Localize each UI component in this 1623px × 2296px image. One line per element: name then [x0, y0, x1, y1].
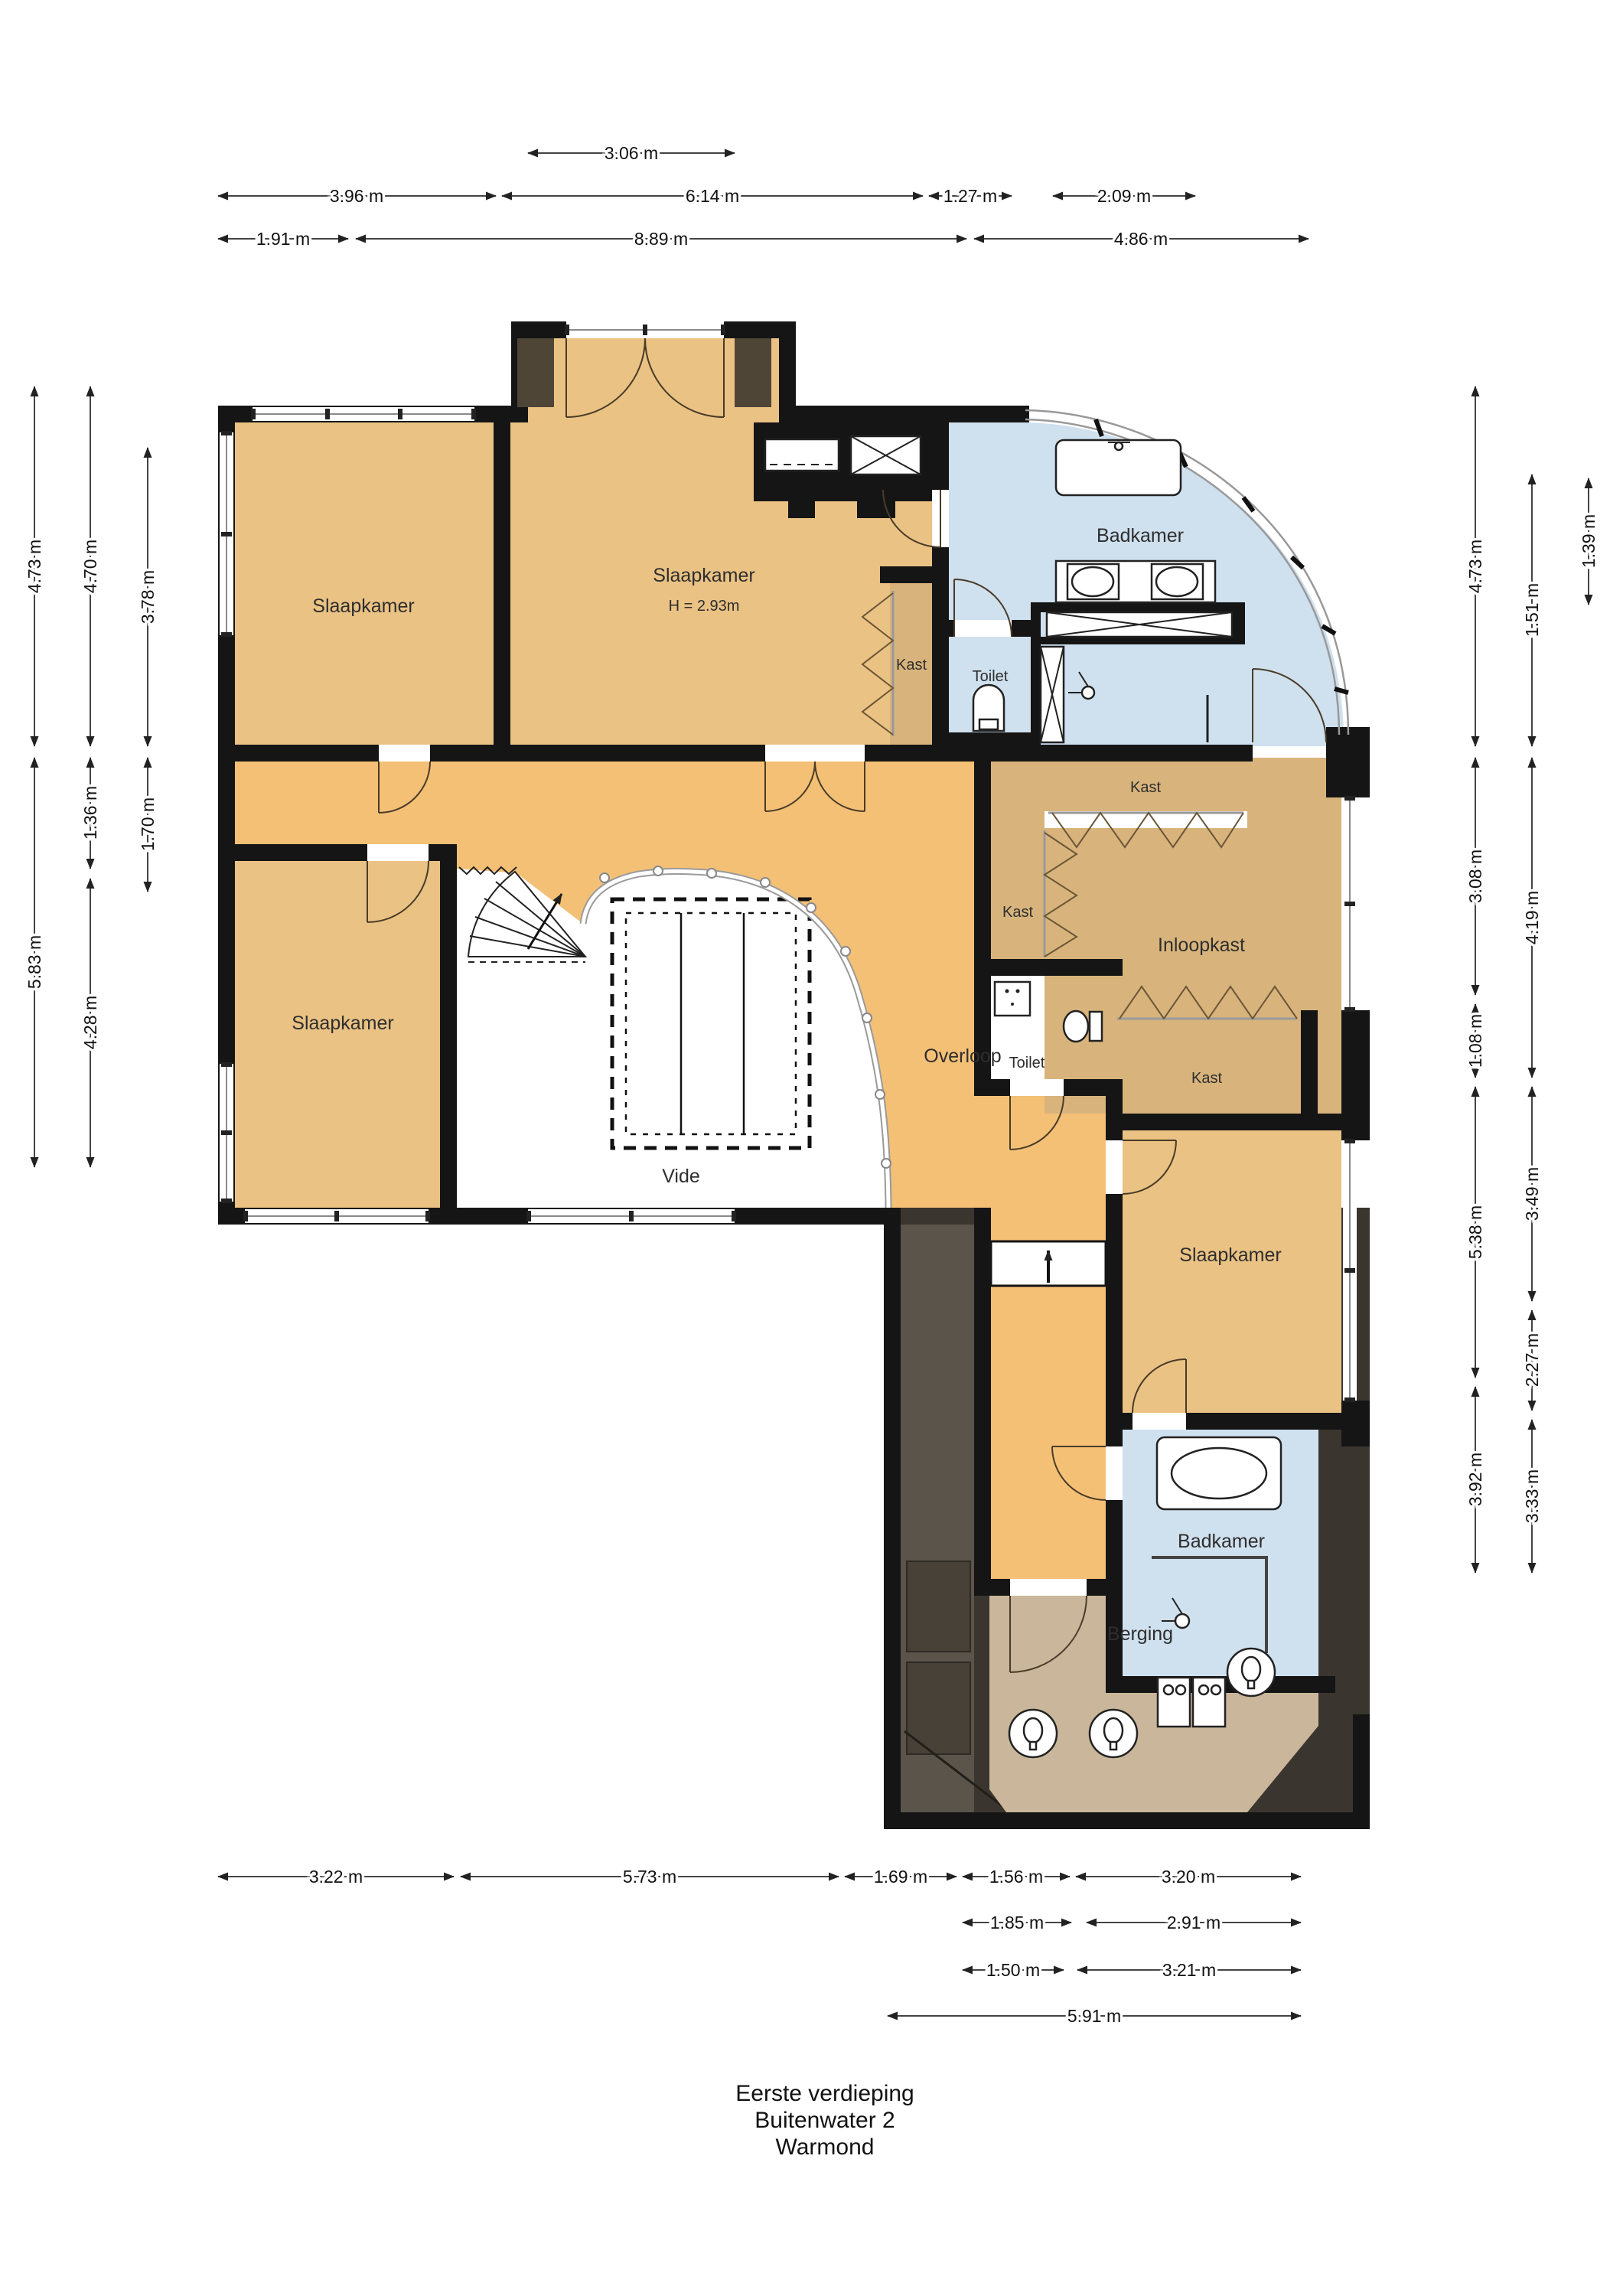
room-label-closet-strip: Kast — [1130, 779, 1161, 796]
svg-text:3.49 m: 3.49 m — [1522, 1167, 1542, 1221]
wall-pier-inset — [735, 338, 771, 407]
svg-text:2.27 m: 2.27 m — [1522, 1333, 1542, 1387]
dimension: 4.70 m — [80, 386, 100, 746]
svg-text:4.73 m: 4.73 m — [24, 540, 44, 593]
bathtub-icon — [1157, 1437, 1281, 1509]
wall-segment — [1353, 1714, 1370, 1812]
dimension: 1.50 m — [963, 1960, 1064, 1980]
svg-text:3.21 m: 3.21 m — [1162, 1960, 1216, 1980]
svg-text:4.86 m: 4.86 m — [1114, 229, 1168, 249]
title-line-2: Buitenwater 2 — [754, 2108, 895, 2133]
wall-segment — [1341, 1401, 1370, 1446]
dimension: 1.36 m — [80, 758, 100, 869]
wall-segment — [974, 1208, 991, 1596]
dimension: 5.91 m — [888, 2006, 1301, 2026]
duct-icon — [765, 439, 839, 471]
wall-segment — [796, 406, 1029, 422]
wall-segment — [440, 844, 457, 1208]
svg-text:5.38 m: 5.38 m — [1465, 1205, 1485, 1259]
window — [220, 431, 233, 637]
dimension: 4.73 m — [1465, 386, 1485, 746]
wall-segment — [1041, 602, 1245, 612]
dimension: 3.33 m — [1522, 1420, 1542, 1573]
svg-text:2.91 m: 2.91 m — [1167, 1913, 1221, 1932]
wall-segment — [511, 321, 566, 338]
dimension: 1.70 m — [138, 758, 158, 892]
svg-text:4.19 m: 4.19 m — [1522, 891, 1542, 944]
dimension: 1.39 m — [1579, 478, 1599, 605]
wall-segment — [218, 745, 1253, 762]
double-sink-icon — [1056, 561, 1215, 602]
shaft-x-icon — [851, 436, 921, 475]
dimension: 3.22 m — [218, 1867, 454, 1887]
title-line-1: Eerste verdieping — [735, 2081, 914, 2106]
roof-equipment-box — [907, 1561, 970, 1652]
wall-segment — [1301, 1010, 1318, 1114]
svg-text:3.22 m: 3.22 m — [309, 1867, 363, 1887]
toilet-icon — [973, 685, 1004, 731]
svg-text:3.96 m: 3.96 m — [330, 186, 383, 206]
window — [565, 323, 725, 337]
svg-text:1.36 m: 1.36 m — [80, 786, 100, 840]
dimension: 1.85 m — [963, 1913, 1071, 1932]
svg-text:1.69 m: 1.69 m — [874, 1867, 927, 1887]
room-label-void: Vide — [662, 1166, 700, 1187]
wall-segment — [884, 1812, 1370, 1829]
svg-text:6.14 m: 6.14 m — [686, 186, 739, 206]
dimension: 3.96 m — [218, 186, 496, 206]
wall-segment — [949, 732, 1041, 745]
wall-segment — [932, 422, 949, 745]
room-label-closet-left: Kast — [1002, 904, 1033, 921]
room-label-bedroom-bottom-right: Slaapkamer — [1179, 1244, 1281, 1266]
dimension: 5.38 m — [1465, 1087, 1485, 1378]
wall-segment — [1031, 602, 1041, 745]
wall-segment — [880, 566, 949, 583]
dimension: 1.91 m — [218, 229, 348, 249]
svg-text:1.39 m: 1.39 m — [1579, 514, 1599, 568]
room-label-bathroom-bottom: Badkamer — [1178, 1531, 1265, 1552]
dimension: 1.27 m — [929, 186, 1012, 206]
wall-segment — [1106, 1114, 1341, 1130]
wall-segment — [1041, 637, 1240, 644]
dimension: 5.83 m — [24, 758, 44, 1167]
wall-segment — [1341, 1010, 1370, 1140]
svg-text:1.50 m: 1.50 m — [986, 1960, 1040, 1980]
room-label-bedroom-top-left: Slaapkamer — [312, 595, 414, 617]
title-block: Eerste verdieping Buitenwater 2 Warmond — [735, 2081, 914, 2160]
window — [220, 1062, 233, 1203]
dimension: 1.69 m — [845, 1867, 957, 1887]
dimension: 2.91 m — [1087, 1913, 1301, 1932]
svg-text:4.73 m: 4.73 m — [1465, 540, 1485, 593]
svg-text:1.91 m: 1.91 m — [256, 229, 310, 249]
dimension: 2.09 m — [1053, 186, 1195, 206]
window — [1343, 1139, 1357, 1402]
dimension: 6.14 m — [502, 186, 923, 206]
wall-segment — [494, 422, 510, 745]
floor-closet-left — [991, 758, 1045, 959]
floor-bedroom-br-overlay — [1123, 1130, 1341, 1413]
dimension: 4.73 m — [24, 386, 44, 746]
wall-segment — [724, 321, 796, 338]
svg-text:1.08 m: 1.08 m — [1465, 1014, 1485, 1068]
dimension: 3.49 m — [1522, 1087, 1542, 1301]
toilet-icon — [1064, 1011, 1102, 1042]
svg-text:3.78 m: 3.78 m — [138, 570, 158, 624]
window — [251, 407, 476, 421]
room-label-bedroom-mid-left: Slaapkamer — [292, 1013, 393, 1034]
dimension: 3.06 m — [528, 143, 735, 163]
wall-segment — [1326, 727, 1370, 797]
dimension: 3.78 m — [138, 448, 158, 746]
room-label-closet-small: Kast — [896, 657, 927, 673]
dimension: 1.51 m — [1522, 475, 1542, 746]
dimension: 2.27 m — [1522, 1310, 1542, 1411]
svg-text:5.83 m: 5.83 m — [24, 935, 44, 989]
room-label-walk-in-closet: Inloopkast — [1158, 934, 1245, 956]
svg-text:1.27 m: 1.27 m — [943, 186, 997, 206]
svg-text:2.09 m: 2.09 m — [1097, 186, 1151, 206]
title-line-3: Warmond — [776, 2135, 875, 2160]
wall-segment — [974, 959, 1123, 976]
room-label-toilet-top: Toilet — [973, 668, 1009, 685]
floorplan-page: Slaapkamer Slaapkamer H = 2.93m Badkamer… — [0, 0, 1623, 2296]
dimension: 1.56 m — [963, 1867, 1070, 1887]
dimension: 3.08 m — [1465, 758, 1485, 995]
dimension: 3.21 m — [1077, 1960, 1301, 1980]
wall-segment — [788, 501, 815, 518]
dimension: 4.86 m — [974, 229, 1309, 249]
sink-icon — [995, 982, 1030, 1016]
svg-text:3.33 m: 3.33 m — [1522, 1469, 1542, 1523]
room-label-toilet-mid: Toilet — [1009, 1055, 1045, 1071]
svg-text:1.70 m: 1.70 m — [138, 797, 158, 851]
bathtub-icon — [1056, 440, 1181, 495]
room-label-storage: Berging — [1107, 1623, 1173, 1645]
svg-text:3.92 m: 3.92 m — [1465, 1453, 1485, 1506]
svg-text:1.51 m: 1.51 m — [1522, 583, 1542, 637]
svg-text:4.28 m: 4.28 m — [80, 996, 100, 1049]
floor-bedroom-mid-left — [235, 861, 440, 1208]
dimension: 1.08 m — [1465, 1004, 1485, 1078]
svg-text:1.56 m: 1.56 m — [989, 1867, 1043, 1887]
dimension: 8.89 m — [356, 229, 966, 249]
svg-text:3.06 m: 3.06 m — [605, 143, 658, 163]
room-label-landing: Overloop — [924, 1045, 1001, 1067]
room-label-bedroom-height: H = 2.93m — [669, 598, 740, 615]
dimension: 3.92 m — [1465, 1387, 1485, 1573]
svg-text:4.70 m: 4.70 m — [80, 540, 100, 593]
roof-strip-right — [1318, 1446, 1370, 1714]
floorplan-drawing: Slaapkamer Slaapkamer H = 2.93m Badkamer… — [0, 0, 1623, 2296]
room-label-closet-bottom: Kast — [1191, 1070, 1222, 1087]
svg-text:3.08 m: 3.08 m — [1465, 850, 1485, 903]
svg-text:5.73 m: 5.73 m — [623, 1867, 676, 1887]
svg-text:8.89 m: 8.89 m — [634, 229, 688, 249]
window — [243, 1209, 430, 1223]
wall-segment — [884, 1208, 901, 1829]
floor-bedroom-top-left — [235, 422, 494, 745]
svg-text:3.20 m: 3.20 m — [1162, 1867, 1215, 1887]
dimension: 3.20 m — [1076, 1867, 1301, 1887]
room-label-bathroom-top: Badkamer — [1097, 525, 1184, 546]
cabinet-icon — [1047, 612, 1232, 637]
hatch-up-arrow-icon — [991, 1241, 1106, 1286]
window — [526, 1209, 736, 1223]
svg-text:5.91 m: 5.91 m — [1067, 2006, 1121, 2026]
dimension: 4.19 m — [1522, 758, 1542, 1078]
room-label-bedroom-top-middle: Slaapkamer — [653, 565, 754, 586]
window — [1343, 796, 1357, 1012]
dimension: 4.28 m — [80, 879, 100, 1167]
wall-pier-inset — [517, 338, 554, 407]
svg-text:1.85 m: 1.85 m — [990, 1913, 1044, 1932]
dimension: 5.73 m — [461, 1867, 839, 1887]
